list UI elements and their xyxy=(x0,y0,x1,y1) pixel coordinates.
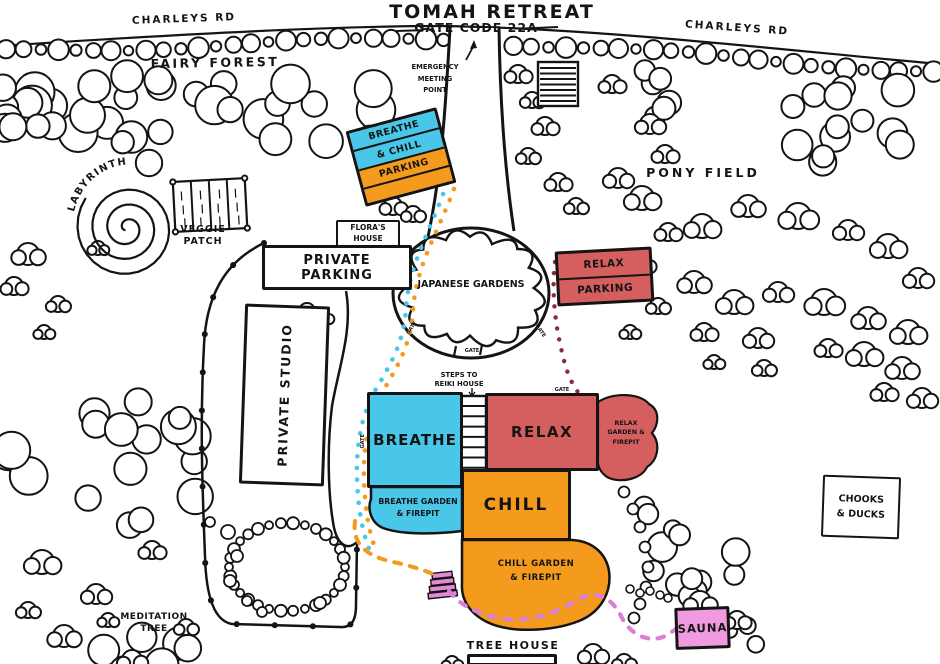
labyrinth-label: LABYRINTH xyxy=(66,156,128,213)
relax-parking: RELAX PARKING xyxy=(555,246,655,306)
private-studio: PRIVATE STUDIO xyxy=(239,304,330,487)
chooks-ducks-pen: CHOOKS & DUCKS xyxy=(821,475,901,540)
private-studio-label: PRIVATE STUDIO xyxy=(274,323,294,467)
tree-house-box xyxy=(467,654,557,664)
retreat-map: LABYRINTH TOMAH RETREAT GATE CODE 22A CH… xyxy=(0,0,940,664)
relax-parking-line2: PARKING xyxy=(559,273,651,303)
map-linework: LABYRINTH xyxy=(0,0,940,664)
sauna: SAUNA xyxy=(674,606,730,650)
breathe-house: BREATHE xyxy=(367,392,463,488)
floras-house: FLORA'S HOUSE xyxy=(336,220,400,247)
relax-house: RELAX xyxy=(485,393,599,471)
chill-house: CHILL xyxy=(461,469,571,541)
private-parking: PRIVATE PARKING xyxy=(262,245,412,290)
